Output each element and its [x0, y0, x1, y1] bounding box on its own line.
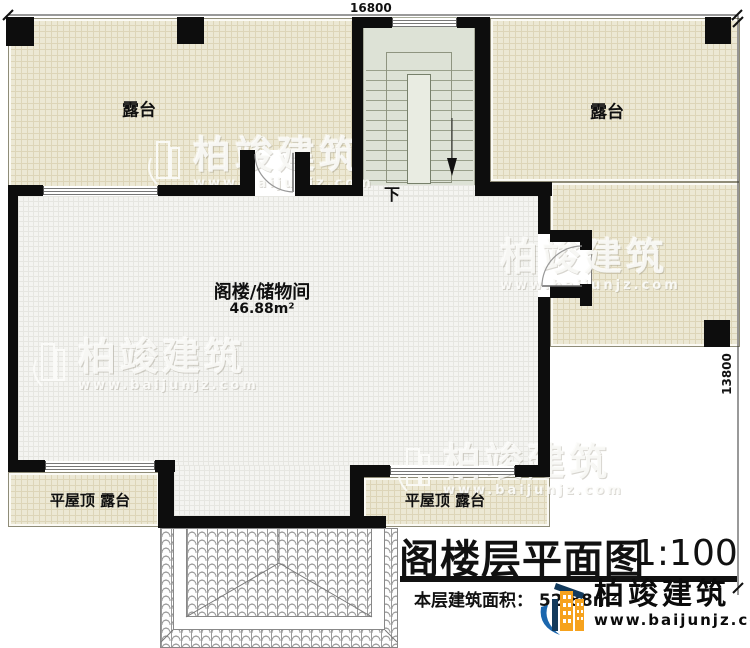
column: [6, 17, 34, 46]
wall-segment: [352, 17, 363, 190]
wall-segment: [475, 17, 490, 196]
window-symbol: [43, 186, 158, 195]
wall-segment: [538, 297, 550, 465]
company-logo: 柏竣建筑 www.baijunjz.com: [536, 579, 750, 637]
window-symbol: [390, 466, 515, 475]
attic-room-bay: [174, 465, 350, 516]
window-symbol: [45, 461, 155, 470]
room-label-terrace-left: 露台: [122, 96, 156, 121]
roof-inner: [186, 528, 372, 617]
dimension-right: 13800: [720, 352, 734, 396]
attic-room-area: [18, 196, 538, 465]
floor-area-label: 本层建筑面积：: [414, 591, 533, 611]
door-jamb: [580, 284, 592, 306]
wall-segment: [490, 182, 552, 196]
drawing-scale: 1:100: [634, 533, 738, 574]
room-label-flat-roof-left: 平屋顶 露台: [50, 490, 130, 511]
column: [177, 17, 204, 44]
column: [705, 17, 731, 44]
logo-building-icon: [536, 579, 590, 637]
room-label-flat-roof-center: 平屋顶 露台: [405, 490, 485, 511]
wall-segment: [8, 185, 43, 196]
wall-segment: [8, 196, 18, 460]
logo-url: www.baijunjz.com: [594, 611, 750, 629]
wall-segment: [158, 185, 242, 196]
wall-segment: [538, 196, 550, 234]
door-jamb: [580, 230, 592, 250]
stair-landing-strip: [363, 185, 475, 196]
column: [704, 320, 730, 347]
floor-plan: 柏竣建筑 www.baijunjz.com 柏竣建筑 www.baijunjz.…: [0, 0, 750, 648]
wall-segment: [8, 460, 45, 472]
door-jamb: [240, 150, 255, 196]
dimension-top: 16800: [350, 1, 392, 15]
window-symbol: [392, 18, 457, 27]
stair-rail: [407, 74, 431, 184]
room-label-terrace-right: 露台: [590, 98, 624, 123]
stair-down-label: 下: [384, 181, 400, 205]
room-label-attic-area: 46.88m²: [229, 301, 294, 317]
wall-segment: [158, 516, 386, 528]
logo-name: 柏竣建筑: [594, 579, 750, 611]
wall-segment: [515, 465, 550, 477]
